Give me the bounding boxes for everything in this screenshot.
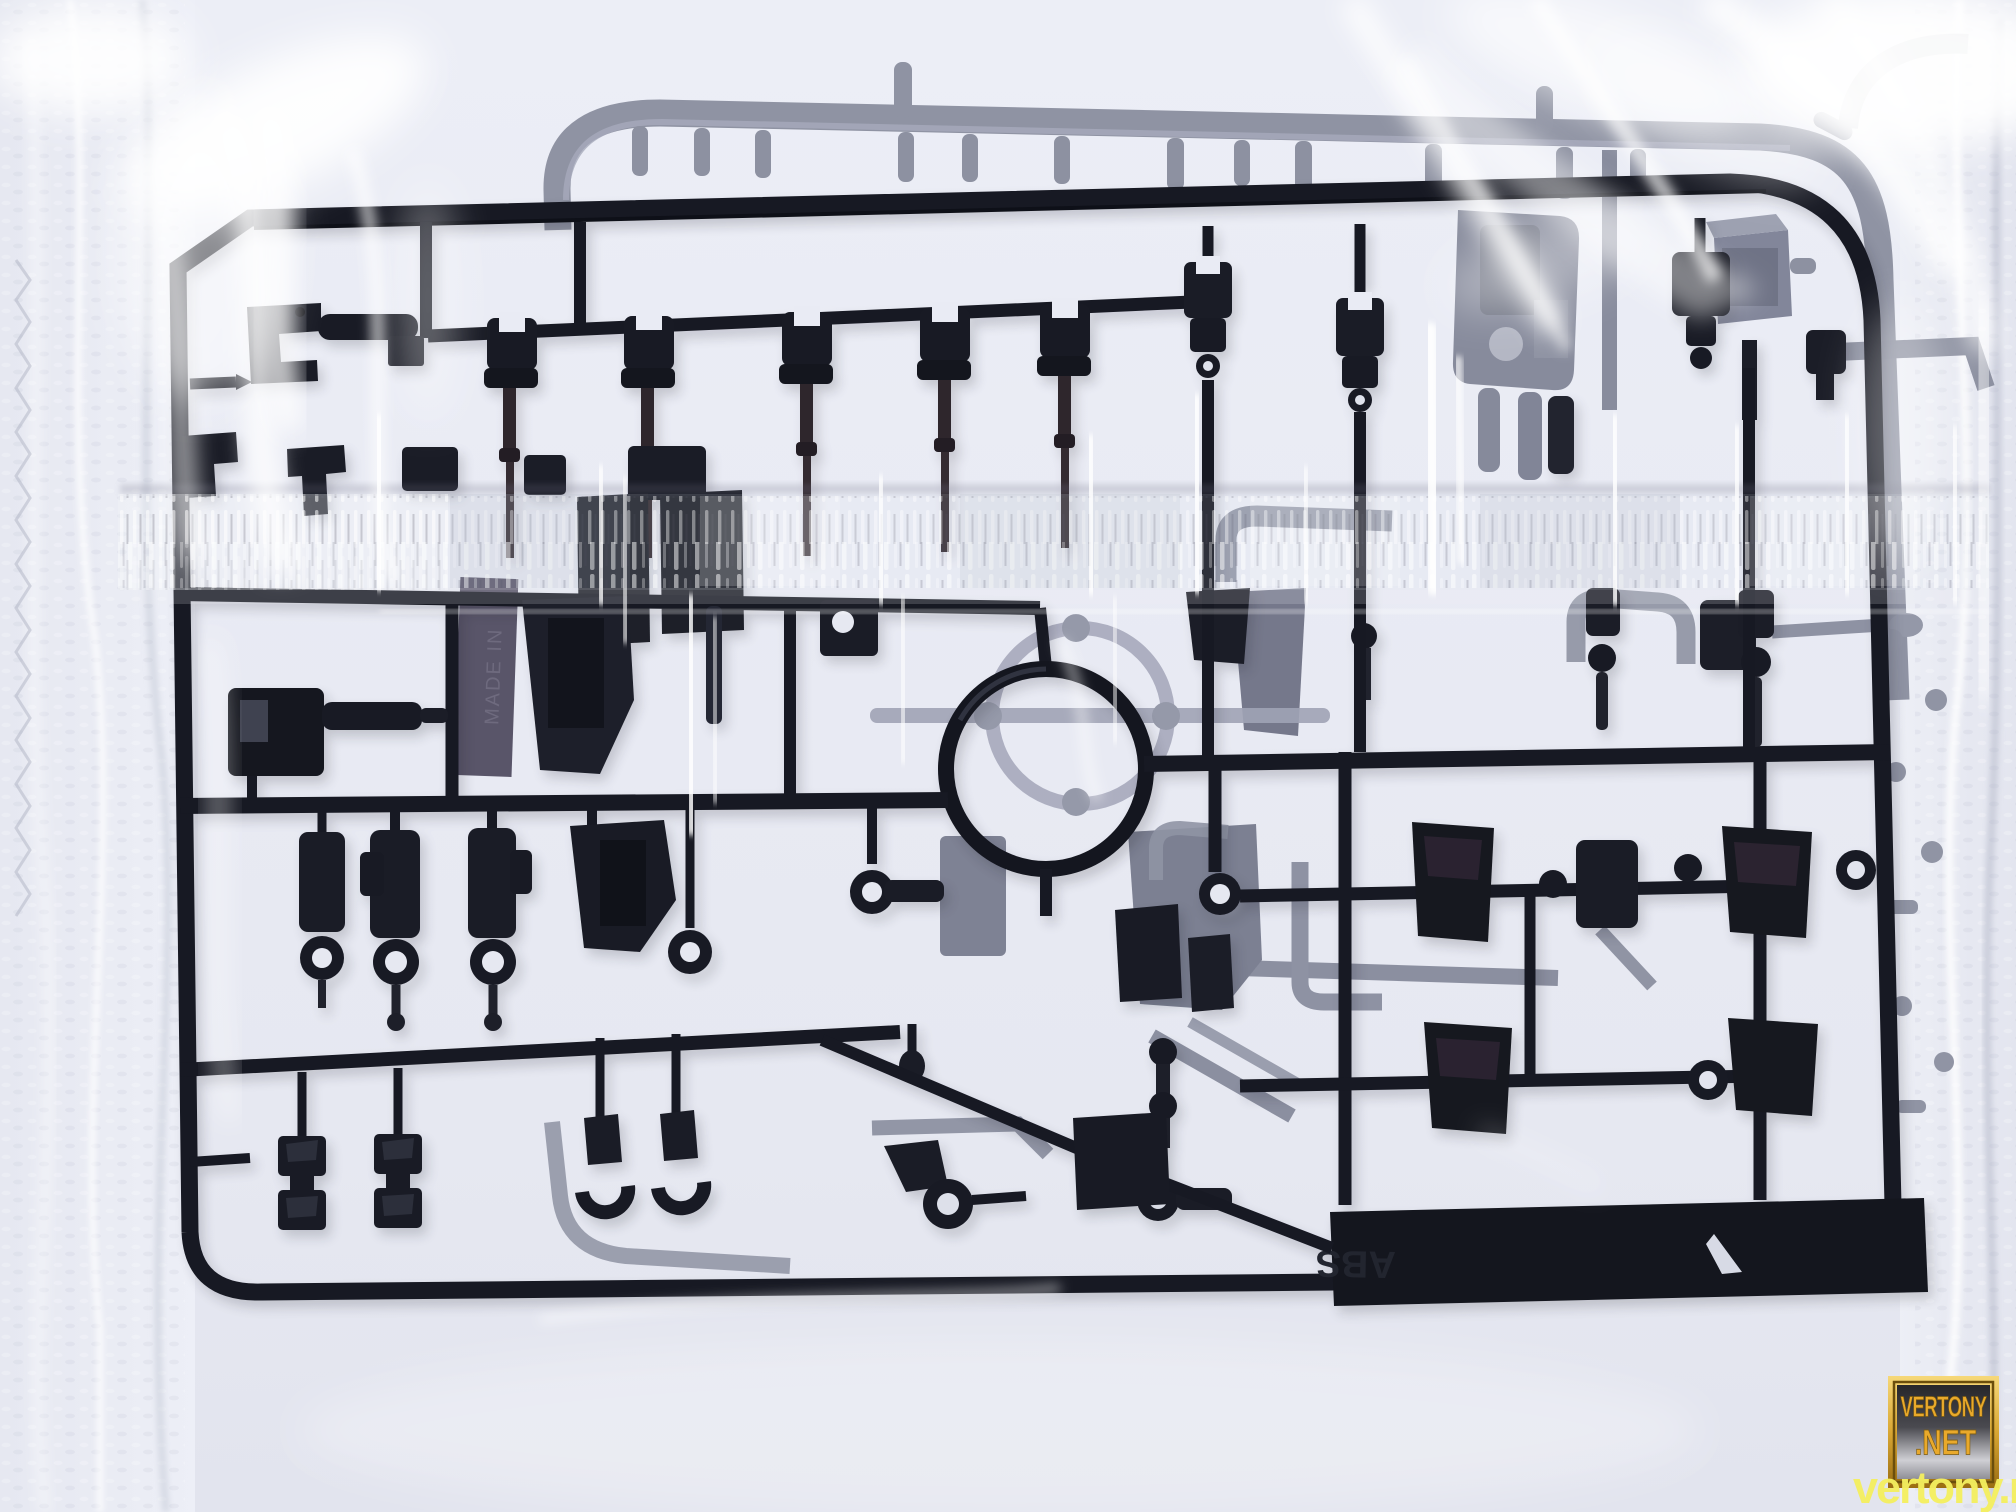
svg-text:MADE IN: MADE IN (481, 627, 506, 725)
svg-text:vertony.net: vertony.net (1853, 1462, 2016, 1512)
svg-text:.NET: .NET (1915, 1422, 1977, 1463)
svg-text:VERTONY: VERTONY (1901, 1392, 1987, 1424)
